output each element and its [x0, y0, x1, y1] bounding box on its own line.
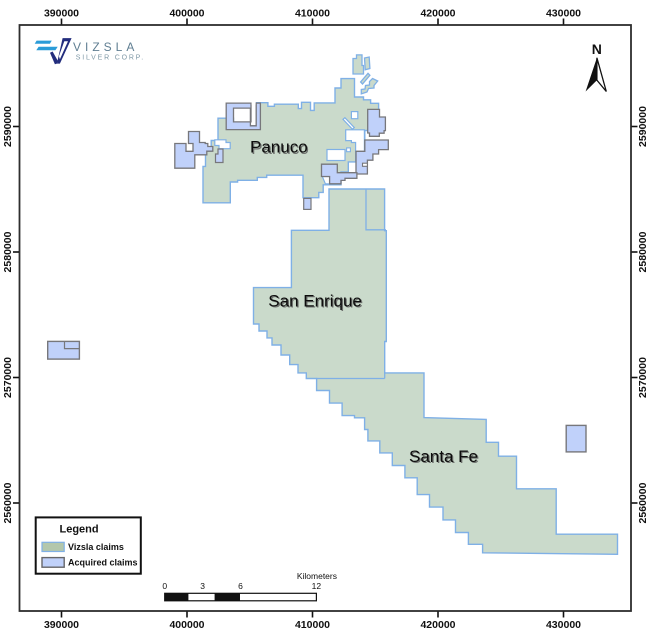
svg-text:SILVER CORP.: SILVER CORP.	[76, 55, 145, 62]
svg-text:Vizsla claims: Vizsla claims	[68, 542, 124, 552]
svg-text:Santa Fe: Santa Fe	[409, 447, 478, 466]
svg-text:2570000: 2570000	[637, 357, 649, 398]
svg-text:VIZSLA: VIZSLA	[73, 40, 138, 54]
svg-text:400000: 400000	[169, 8, 204, 20]
svg-text:420000: 420000	[420, 619, 455, 631]
svg-text:2590000: 2590000	[2, 106, 14, 147]
svg-text:2570000: 2570000	[2, 357, 14, 398]
svg-text:390000: 390000	[44, 619, 79, 631]
svg-text:12: 12	[312, 581, 322, 591]
svg-text:Kilometers: Kilometers	[297, 571, 337, 581]
svg-text:Legend: Legend	[60, 524, 99, 536]
svg-text:N: N	[592, 41, 602, 57]
svg-text:San Enrique: San Enrique	[268, 291, 362, 310]
svg-text:6: 6	[238, 581, 243, 591]
svg-text:410000: 410000	[295, 8, 330, 20]
svg-text:430000: 430000	[546, 8, 581, 20]
svg-text:2590000: 2590000	[637, 106, 649, 147]
svg-text:0: 0	[162, 581, 167, 591]
svg-text:400000: 400000	[169, 619, 204, 631]
svg-text:3: 3	[200, 581, 205, 591]
svg-text:Panuco: Panuco	[250, 138, 308, 157]
svg-text:410000: 410000	[295, 619, 330, 631]
svg-text:420000: 420000	[420, 8, 455, 20]
svg-text:2560000: 2560000	[2, 482, 14, 523]
svg-text:2580000: 2580000	[637, 231, 649, 272]
svg-text:430000: 430000	[546, 619, 581, 631]
svg-text:Acquired claims: Acquired claims	[68, 558, 138, 568]
svg-text:2560000: 2560000	[637, 482, 649, 523]
svg-text:2580000: 2580000	[2, 231, 14, 272]
svg-text:390000: 390000	[44, 8, 79, 20]
